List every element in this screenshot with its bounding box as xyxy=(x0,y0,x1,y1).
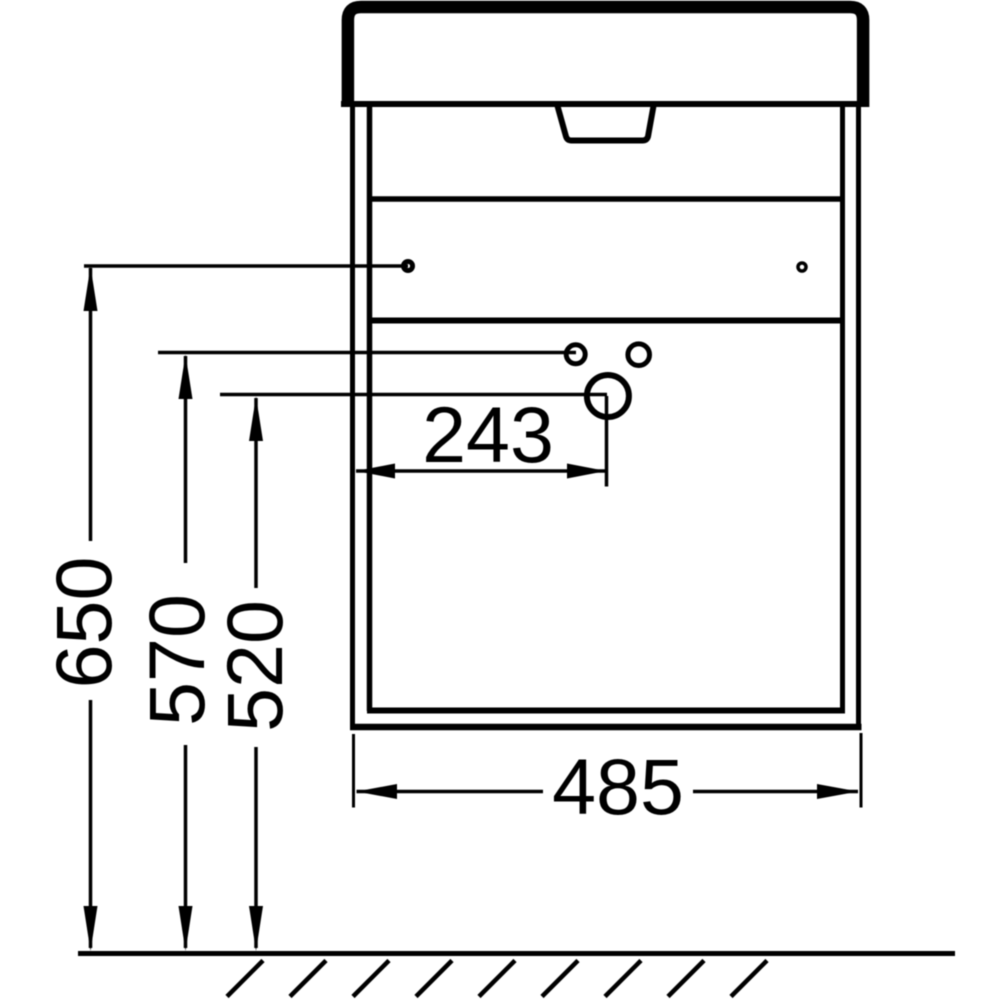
svg-text:485: 485 xyxy=(552,742,684,831)
svg-text:570: 570 xyxy=(132,594,221,726)
svg-text:650: 650 xyxy=(39,557,128,689)
svg-text:243: 243 xyxy=(422,390,554,479)
svg-text:520: 520 xyxy=(210,600,299,732)
